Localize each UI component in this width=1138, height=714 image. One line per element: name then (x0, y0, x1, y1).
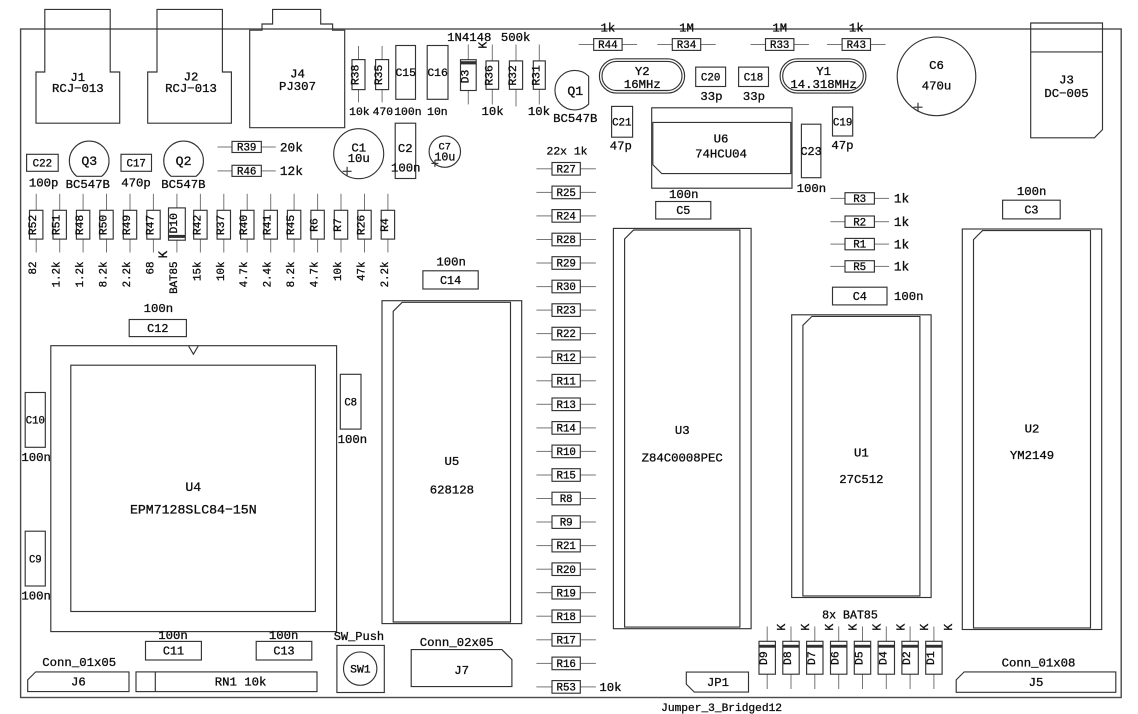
svg-text:C18: C18 (744, 72, 763, 84)
svg-text:R21: R21 (556, 541, 575, 553)
svg-text:D6: D6 (831, 651, 843, 665)
svg-text:C3: C3 (1024, 203, 1038, 217)
svg-text:R36: R36 (484, 65, 496, 86)
svg-text:R22: R22 (556, 329, 575, 341)
svg-text:SW1: SW1 (350, 665, 371, 677)
svg-text:D9: D9 (759, 651, 771, 665)
svg-text:R7: R7 (333, 218, 345, 232)
svg-text:R34: R34 (677, 40, 696, 52)
svg-text:J7: J7 (454, 664, 469, 678)
svg-text:R43: R43 (847, 40, 866, 52)
svg-text:Q2: Q2 (176, 154, 192, 169)
svg-text:U2: U2 (1025, 422, 1040, 436)
svg-text:R17: R17 (556, 635, 575, 647)
svg-text:R1: R1 (853, 240, 866, 252)
svg-text:U4: U4 (185, 480, 201, 495)
svg-text:C10: C10 (26, 415, 45, 427)
svg-text:C11: C11 (163, 645, 184, 659)
svg-text:22x 1k: 22x 1k (546, 147, 587, 159)
svg-text:74HCU04: 74HCU04 (695, 147, 747, 161)
svg-text:R32: R32 (508, 65, 520, 86)
svg-text:R23: R23 (556, 306, 575, 318)
svg-text:R16: R16 (556, 659, 575, 671)
svg-text:100n: 100n (394, 107, 421, 119)
svg-text:R39: R39 (237, 143, 256, 155)
svg-text:100n: 100n (21, 590, 51, 604)
svg-text:100n: 100n (669, 188, 699, 202)
svg-text:PJ307: PJ307 (279, 80, 316, 94)
svg-text:R53: R53 (556, 683, 575, 695)
svg-text:C19: C19 (833, 117, 852, 129)
svg-text:K: K (478, 42, 491, 49)
svg-text:D2: D2 (902, 651, 914, 665)
svg-text:R45: R45 (286, 215, 298, 236)
svg-text:C16: C16 (427, 68, 448, 80)
svg-text:C17: C17 (126, 159, 145, 171)
svg-text:BC547B: BC547B (553, 112, 597, 126)
svg-text:Y1: Y1 (816, 65, 831, 79)
svg-text:100n: 100n (144, 302, 174, 316)
svg-text:33p: 33p (700, 90, 722, 104)
svg-text:C2: C2 (398, 142, 413, 156)
svg-text:16MHz: 16MHz (624, 78, 661, 92)
svg-text:R10: R10 (556, 447, 575, 459)
svg-text:47k: 47k (357, 262, 369, 281)
svg-text:R37: R37 (216, 215, 228, 236)
svg-text:K: K (872, 624, 885, 631)
svg-text:14.318MHz: 14.318MHz (790, 78, 856, 92)
svg-text:BC547B: BC547B (66, 178, 110, 192)
svg-text:R33: R33 (770, 40, 789, 52)
svg-text:2.2k: 2.2k (122, 262, 134, 288)
svg-text:10u: 10u (348, 152, 370, 166)
svg-text:C8: C8 (344, 398, 357, 410)
svg-text:100n: 100n (21, 451, 51, 465)
svg-text:10u: 10u (434, 152, 455, 165)
svg-text:R19: R19 (556, 588, 575, 600)
svg-text:82: 82 (28, 262, 40, 275)
svg-text:470p: 470p (121, 176, 151, 190)
svg-text:1k: 1k (849, 22, 864, 36)
svg-text:BC547B: BC547B (161, 178, 205, 192)
svg-text:C9: C9 (29, 555, 42, 567)
svg-text:J5: J5 (1029, 676, 1044, 690)
svg-text:10k: 10k (482, 105, 504, 119)
svg-text:K: K (776, 624, 789, 631)
svg-text:JP1: JP1 (707, 676, 729, 690)
svg-text:C21: C21 (612, 118, 631, 130)
svg-text:R44: R44 (598, 40, 617, 52)
svg-text:K: K (848, 624, 861, 631)
svg-text:100p: 100p (29, 176, 59, 190)
svg-text:8.2k: 8.2k (99, 262, 111, 288)
svg-text:Q1: Q1 (567, 84, 583, 99)
svg-text:47p: 47p (831, 139, 853, 153)
svg-text:RCJ−013: RCJ−013 (165, 82, 217, 96)
svg-text:1k: 1k (894, 237, 910, 252)
svg-text:K: K (157, 250, 171, 258)
svg-text:K: K (895, 624, 908, 631)
svg-text:R35: R35 (374, 64, 386, 85)
svg-text:4.7k: 4.7k (310, 262, 322, 288)
svg-text:C22: C22 (33, 159, 52, 171)
svg-text:K: K (943, 624, 956, 631)
svg-text:100n: 100n (894, 290, 924, 304)
svg-text:C14: C14 (440, 274, 461, 288)
svg-text:100n: 100n (391, 161, 421, 175)
svg-text:C20: C20 (701, 72, 720, 84)
svg-text:R13: R13 (556, 400, 575, 412)
svg-text:R27: R27 (556, 164, 575, 176)
svg-text:10k: 10k (216, 262, 228, 281)
svg-text:D8: D8 (783, 651, 795, 665)
svg-text:470u: 470u (922, 80, 952, 94)
svg-text:RCJ−013: RCJ−013 (52, 82, 104, 96)
svg-text:1k: 1k (601, 22, 616, 36)
svg-text:27C512: 27C512 (839, 473, 883, 487)
svg-text:D7: D7 (807, 651, 819, 665)
svg-text:Conn_01x08: Conn_01x08 (1002, 657, 1076, 671)
svg-text:10k: 10k (333, 262, 345, 281)
svg-text:1k: 1k (894, 215, 910, 230)
svg-text:C4: C4 (853, 290, 867, 304)
svg-text:RN1 10k: RN1 10k (215, 676, 267, 690)
svg-text:YM2149: YM2149 (1010, 449, 1054, 463)
svg-text:C5: C5 (676, 204, 690, 218)
svg-text:R20: R20 (556, 565, 575, 577)
svg-text:R51: R51 (52, 215, 64, 236)
svg-text:EPM7128SLC84−15N: EPM7128SLC84−15N (130, 503, 257, 518)
svg-text:R47: R47 (145, 215, 157, 236)
svg-text:K: K (824, 624, 837, 631)
svg-text:10k: 10k (528, 105, 550, 119)
svg-text:100n: 100n (436, 255, 466, 269)
svg-text:R5: R5 (853, 262, 866, 274)
svg-text:D10: D10 (169, 213, 181, 234)
svg-text:1M: 1M (772, 22, 787, 36)
svg-text:R9: R9 (560, 518, 573, 530)
svg-text:C12: C12 (147, 322, 168, 336)
svg-text:J3: J3 (1059, 73, 1074, 87)
svg-text:U3: U3 (675, 424, 690, 438)
svg-text:C15: C15 (395, 68, 416, 80)
svg-text:R46: R46 (237, 167, 256, 179)
svg-text:10n: 10n (427, 107, 448, 119)
svg-text:D4: D4 (878, 651, 890, 665)
svg-text:R28: R28 (556, 235, 575, 247)
svg-text:100n: 100n (1017, 185, 1047, 199)
svg-text:R24: R24 (556, 212, 575, 224)
svg-text:R29: R29 (556, 259, 575, 271)
svg-text:R14: R14 (556, 424, 575, 436)
svg-text:C13: C13 (273, 645, 294, 659)
svg-text:1.2k: 1.2k (75, 262, 87, 288)
svg-text:12k: 12k (280, 164, 303, 179)
svg-text:D3: D3 (460, 70, 472, 84)
svg-text:Jumper_3_Bridged12: Jumper_3_Bridged12 (661, 703, 782, 714)
svg-text:R12: R12 (556, 353, 575, 365)
svg-text:R11: R11 (556, 376, 575, 388)
svg-text:500k: 500k (501, 31, 531, 45)
svg-text:Y2: Y2 (635, 65, 650, 79)
svg-text:R8: R8 (560, 494, 573, 506)
svg-text:10k: 10k (599, 681, 621, 695)
svg-text:4.7k: 4.7k (239, 262, 251, 288)
svg-text:628128: 628128 (430, 484, 474, 498)
svg-text:R15: R15 (556, 471, 575, 483)
svg-text:U1: U1 (854, 446, 869, 460)
svg-text:R3: R3 (853, 194, 866, 206)
svg-text:R6: R6 (310, 218, 322, 232)
svg-text:Conn_01x05: Conn_01x05 (42, 656, 116, 670)
svg-text:1M: 1M (679, 22, 694, 36)
svg-text:C6: C6 (929, 59, 944, 73)
svg-text:68: 68 (145, 262, 157, 275)
svg-text:C23: C23 (800, 145, 821, 159)
svg-text:1k: 1k (894, 192, 910, 207)
svg-text:SW_Push: SW_Push (334, 630, 384, 644)
svg-text:R38: R38 (351, 64, 363, 85)
svg-text:1k: 1k (894, 260, 910, 275)
svg-text:R25: R25 (556, 188, 575, 200)
svg-text:Z84C0008PEC: Z84C0008PEC (642, 451, 723, 465)
svg-text:100n: 100n (338, 433, 368, 447)
svg-text:J6: J6 (71, 676, 86, 690)
svg-text:Q3: Q3 (81, 154, 97, 169)
svg-text:15k: 15k (192, 262, 204, 281)
svg-text:2.4k: 2.4k (263, 262, 275, 288)
svg-text:R4: R4 (380, 218, 392, 232)
svg-text:R49: R49 (122, 215, 134, 236)
svg-text:8.2k: 8.2k (286, 262, 298, 288)
svg-text:D5: D5 (855, 651, 867, 665)
svg-text:K: K (800, 624, 813, 631)
svg-text:8x BAT85: 8x BAT85 (822, 610, 878, 623)
svg-text:R48: R48 (75, 215, 87, 236)
svg-text:2.2k: 2.2k (380, 262, 392, 288)
svg-text:20k: 20k (280, 140, 303, 155)
svg-text:R40: R40 (239, 215, 251, 236)
svg-text:100n: 100n (797, 182, 827, 196)
svg-text:R42: R42 (192, 215, 204, 236)
svg-text:R52: R52 (28, 215, 40, 236)
svg-text:R18: R18 (556, 612, 575, 624)
svg-text:R26: R26 (357, 215, 369, 236)
svg-text:K: K (919, 624, 932, 631)
svg-text:DC−005: DC−005 (1044, 87, 1088, 101)
svg-text:1.2k: 1.2k (52, 262, 64, 288)
svg-text:BAT85: BAT85 (169, 262, 181, 294)
svg-text:R30: R30 (556, 282, 575, 294)
svg-text:U5: U5 (445, 455, 460, 469)
svg-text:R41: R41 (263, 215, 275, 236)
svg-text:D1: D1 (926, 651, 938, 665)
svg-text:47p: 47p (610, 139, 632, 153)
svg-text:R50: R50 (99, 215, 111, 236)
svg-text:R2: R2 (853, 217, 866, 229)
svg-text:Conn_02x05: Conn_02x05 (420, 636, 494, 650)
svg-text:U6: U6 (714, 133, 729, 147)
svg-text:470: 470 (373, 107, 394, 119)
svg-text:33p: 33p (743, 90, 765, 104)
svg-text:R31: R31 (531, 65, 543, 86)
svg-text:10k: 10k (349, 107, 370, 119)
